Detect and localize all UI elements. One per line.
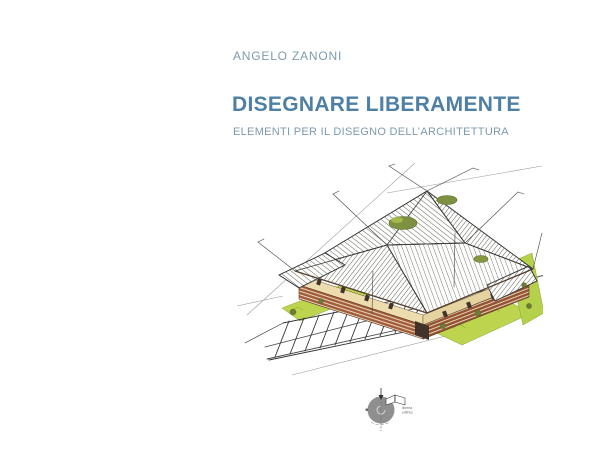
book-title: DISEGNARE LIBERAMENTE [232, 93, 521, 117]
open-book-icon [386, 395, 405, 405]
cover-illustration [237, 163, 543, 381]
logo-text-line1: libreria [402, 406, 412, 410]
book-subtitle: ELEMENTI PER IL DISEGNO DELL’ARCHITETTUR… [233, 126, 509, 138]
logo-text-line2: editrice [402, 410, 413, 414]
author-name: ANGELO ZANONI [233, 49, 342, 63]
book-cover: ANGELO ZANONI DISEGNARE LIBERAMENTE ELEM… [0, 0, 600, 450]
publisher-logo: libreria editrice [362, 387, 432, 435]
